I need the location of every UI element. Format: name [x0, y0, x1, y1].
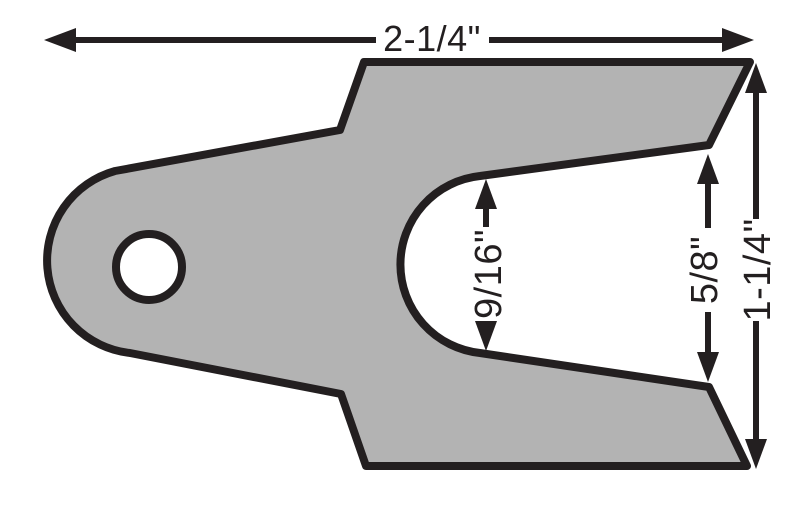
shim-part	[47, 62, 750, 466]
opening-width-label: 5/8"	[684, 236, 726, 304]
mounting-hole	[116, 234, 182, 300]
overall-width-label: 2-1/4"	[383, 18, 481, 59]
arrowhead-down-icon	[475, 321, 497, 351]
arrowhead-left-icon	[44, 28, 76, 52]
slot-width-label: 9/16"	[468, 229, 510, 319]
dimension-end-width: 1-1/4"	[737, 63, 779, 469]
end-width-label: 1-1/4"	[737, 218, 779, 321]
arrowhead-right-icon	[722, 28, 754, 52]
arrowhead-down-icon	[697, 352, 719, 382]
dimension-opening-width: 5/8"	[684, 154, 726, 382]
arrowhead-up-icon	[475, 179, 497, 209]
shim-dimension-drawing: 2-1/4" 9/16" 5/8" 1-1/4"	[0, 0, 800, 505]
dimension-overall-width: 2-1/4"	[44, 18, 754, 59]
dimension-slot-width: 9/16"	[468, 179, 510, 351]
arrowhead-up-icon	[697, 154, 719, 184]
drawing-svg: 2-1/4" 9/16" 5/8" 1-1/4"	[0, 0, 800, 505]
